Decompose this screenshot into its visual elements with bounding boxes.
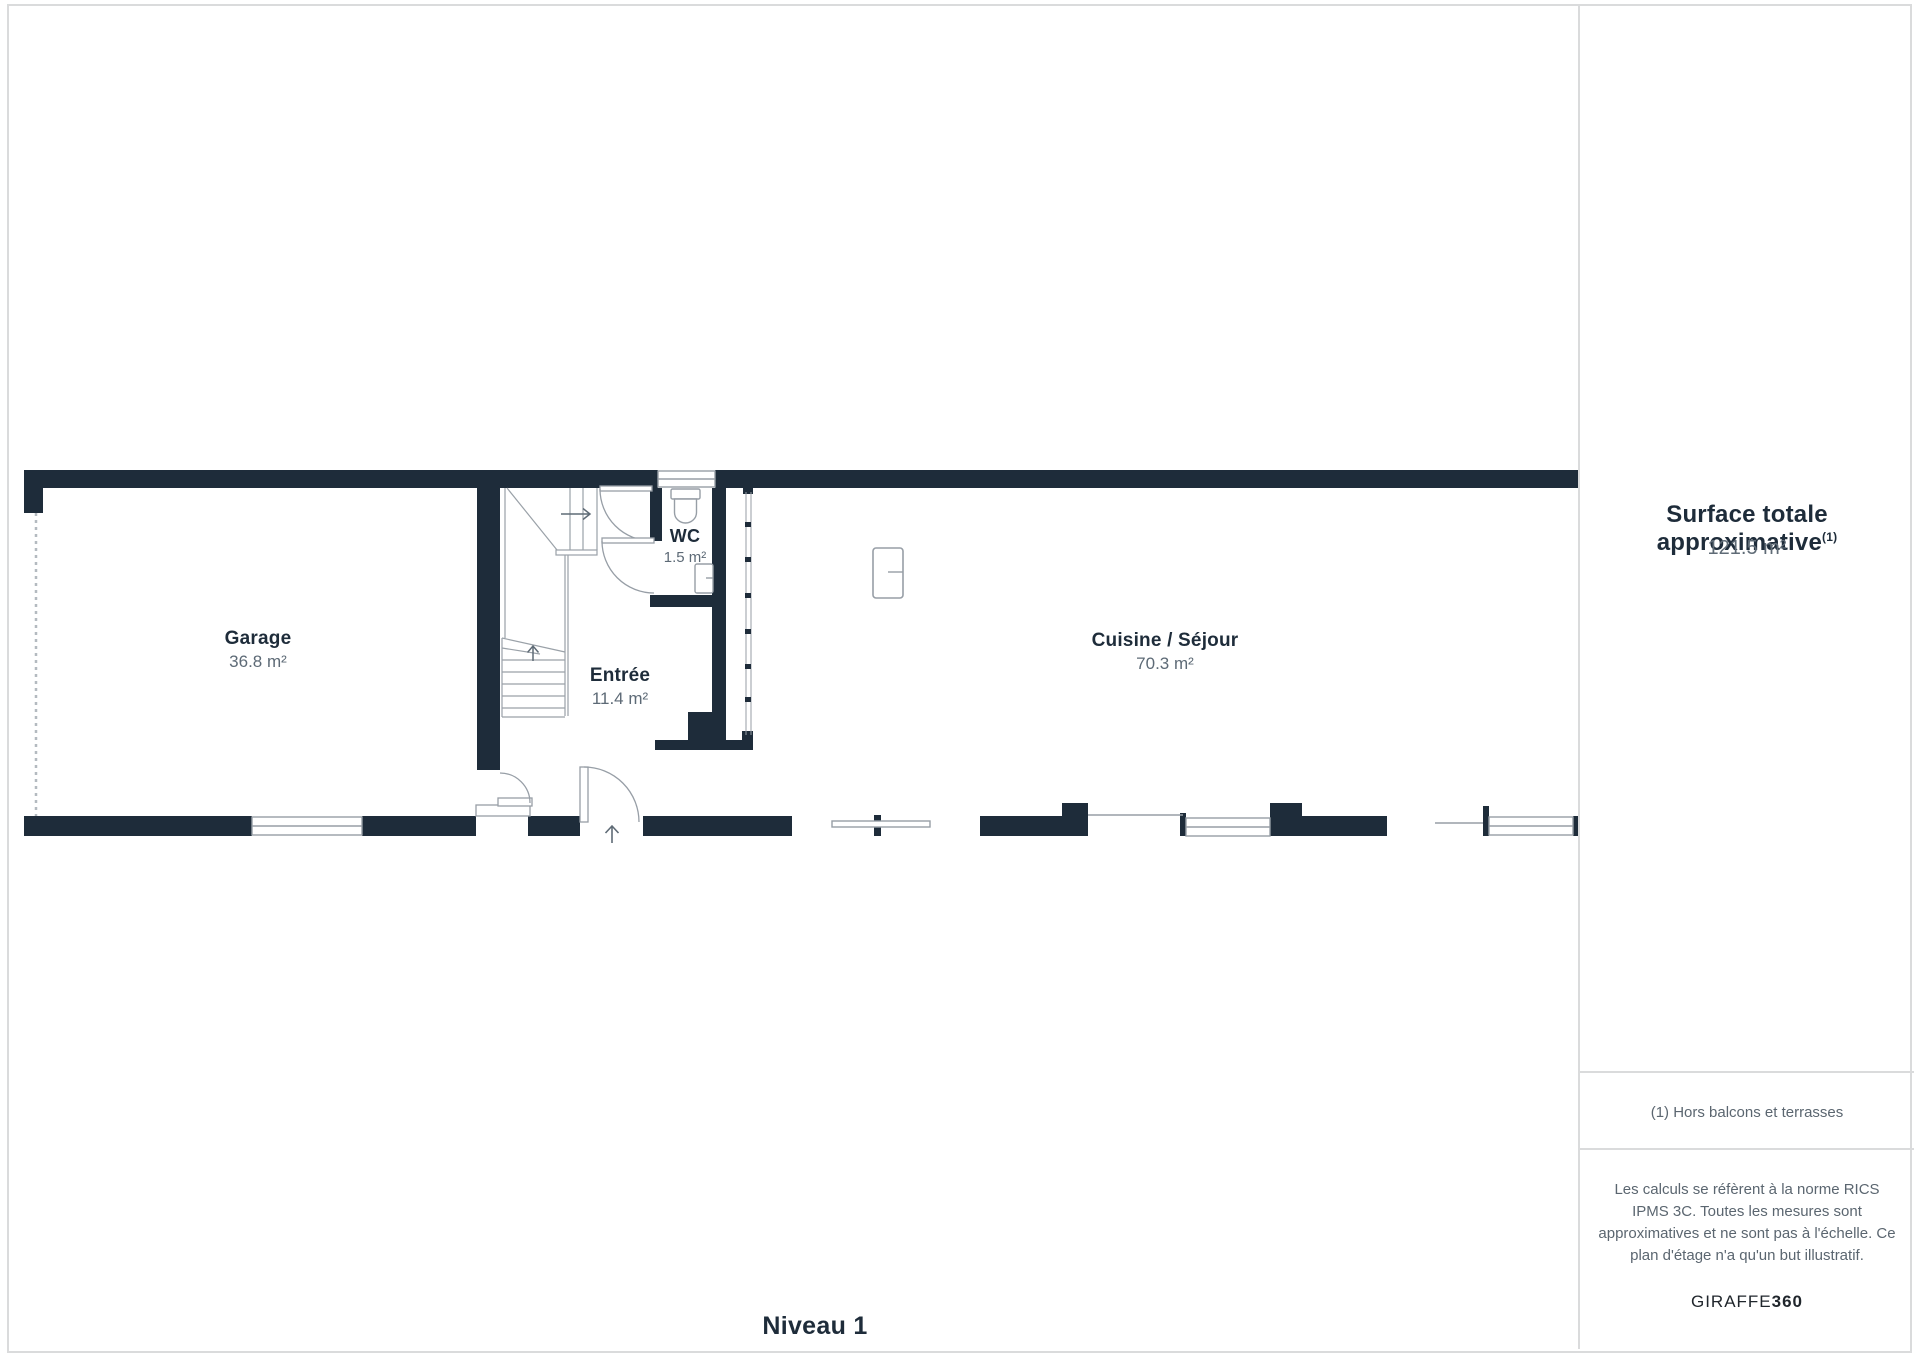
level-label: Niveau 1 xyxy=(762,1312,867,1341)
room-name: Entrée xyxy=(590,665,650,687)
stairs xyxy=(502,488,597,717)
glass-partition xyxy=(745,492,751,735)
room-name: Garage xyxy=(225,628,292,650)
brand-suffix: 360 xyxy=(1772,1292,1803,1311)
footnote-text: (1) Hors balcons et terrasses xyxy=(1580,1104,1914,1121)
room-label-wc: WC 1.5 m² xyxy=(664,526,707,566)
stove-icon xyxy=(873,548,903,598)
entrance-arrow xyxy=(606,826,619,843)
disclaimer-text: Les calculs se réfèrent à la norme RICS … xyxy=(1595,1179,1900,1267)
room-area: 11.4 m² xyxy=(592,689,648,709)
windows xyxy=(252,471,1602,836)
room-name: Cuisine / Séjour xyxy=(1092,630,1239,652)
room-area: 70.3 m² xyxy=(1136,654,1194,674)
sidebar: Surface totale approximative(1) 121.5 m²… xyxy=(1578,4,1914,1349)
total-area-value: 121.5 m² xyxy=(1580,537,1914,560)
room-area: 1.5 m² xyxy=(664,549,707,566)
room-area: 36.8 m² xyxy=(229,652,287,672)
toilet-icon xyxy=(671,489,700,523)
sidebar-divider xyxy=(1580,1148,1914,1150)
sidebar-divider xyxy=(1580,1071,1914,1073)
room-label-entree: Entrée 11.4 m² xyxy=(590,665,650,709)
room-label-cuisine-sejour: Cuisine / Séjour 70.3 m² xyxy=(1092,630,1239,674)
room-name: WC xyxy=(670,526,700,547)
brand-logo: GIRAFFE360 xyxy=(1580,1292,1914,1312)
washbasin-icon xyxy=(695,564,713,593)
brand-name: GIRAFFE xyxy=(1691,1292,1772,1311)
page: { "page": { "background": "#ffffff", "bo… xyxy=(0,0,1919,1358)
room-label-garage: Garage 36.8 m² xyxy=(225,628,292,672)
